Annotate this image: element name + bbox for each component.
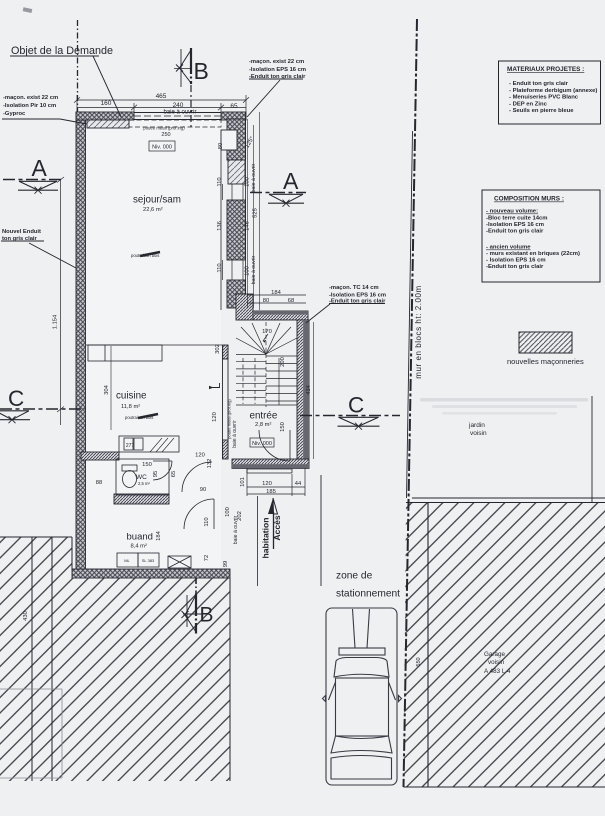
svg-text:stationnement: stationnement	[336, 589, 400, 600]
svg-text:Nouvel Enduit: Nouvel Enduit	[2, 229, 41, 235]
svg-text:2,8 m²: 2,8 m²	[255, 422, 271, 428]
svg-text:72: 72	[204, 555, 210, 561]
svg-text:Niv. 000: Niv. 000	[252, 441, 272, 447]
svg-text:ML: ML	[124, 558, 130, 563]
svg-text:C: C	[348, 393, 364, 418]
svg-text:100: 100	[225, 507, 231, 517]
svg-text:11,8 m²: 11,8 m²	[121, 404, 140, 410]
svg-text:ton gris clair: ton gris clair	[2, 236, 38, 242]
svg-text:200: 200	[280, 357, 286, 367]
svg-text:Objet de la Demande: Objet de la Demande	[11, 45, 113, 57]
svg-text:95: 95	[153, 471, 159, 477]
svg-text:550: 550	[416, 657, 422, 666]
svg-text:zone de: zone de	[336, 571, 373, 582]
svg-text:110: 110	[217, 263, 223, 272]
svg-text:88: 88	[96, 480, 102, 486]
svg-text:A 483 L 4: A 483 L 4	[484, 668, 511, 675]
svg-text:-Enduit ton gris clair: -Enduit ton gris clair	[329, 299, 386, 305]
svg-text:-maçon. exist 22 cm: -maçon. exist 22 cm	[3, 95, 58, 101]
svg-text:8,4 m²: 8,4 m²	[131, 544, 147, 550]
svg-text:2,5 m²: 2,5 m²	[138, 481, 150, 486]
svg-text:baie à ouvrir: baie à ouvrir	[251, 163, 257, 192]
svg-text:120: 120	[212, 412, 218, 422]
svg-text:80: 80	[218, 143, 224, 149]
svg-text:- DEP en Zinc: - DEP en Zinc	[509, 101, 548, 107]
svg-text:90: 90	[200, 487, 206, 493]
svg-text:185: 185	[266, 489, 276, 495]
svg-text:C: C	[8, 386, 24, 411]
svg-text:430: 430	[23, 611, 29, 621]
svg-text:B: B	[194, 58, 209, 84]
svg-text:110: 110	[204, 517, 210, 526]
svg-text:68: 68	[288, 298, 294, 304]
svg-text:baie à ouvrir: baie à ouvrir	[233, 515, 239, 544]
svg-text:-Isolation Pir 10 cm: -Isolation Pir 10 cm	[3, 103, 56, 109]
svg-text:-Isolation EPS 16 cm: -Isolation EPS 16 cm	[486, 222, 544, 228]
svg-text:SL 383: SL 383	[142, 558, 155, 563]
svg-text:- murs existant en briques (22: - murs existant en briques (22cm)	[486, 251, 580, 257]
svg-text:150: 150	[280, 422, 286, 432]
svg-text:101: 101	[240, 477, 246, 487]
svg-text:160: 160	[101, 100, 112, 107]
svg-text:A: A	[32, 155, 48, 181]
svg-text:1.154: 1.154	[53, 314, 59, 329]
svg-text:65: 65	[230, 103, 238, 110]
svg-text:184: 184	[156, 530, 162, 540]
svg-text:baie à ouvrir: baie à ouvrir	[232, 420, 238, 448]
svg-text:434: 434	[306, 384, 312, 394]
svg-text:-Enduit ton gris clair: -Enduit ton gris clair	[249, 74, 306, 80]
svg-text:jardin: jardin	[468, 422, 485, 429]
svg-text:277: 277	[126, 443, 135, 449]
svg-text:170: 170	[262, 329, 272, 335]
svg-text:baie à ouvrir: baie à ouvrir	[163, 110, 196, 116]
svg-text:132: 132	[207, 459, 213, 469]
svg-text:184: 184	[271, 290, 281, 296]
svg-text:- nouveau volume:: - nouveau volume:	[486, 209, 538, 215]
svg-text:-Enduit ton gris clair: -Enduit ton gris clair	[486, 264, 544, 270]
svg-text:mur en blocs ht: 2.00m: mur en blocs ht: 2.00m	[414, 285, 423, 378]
svg-text:465: 465	[156, 93, 167, 100]
svg-text:voisin: voisin	[470, 430, 487, 437]
svg-text:99: 99	[223, 561, 229, 567]
svg-text:-Bloc terre cuite 14cm: -Bloc terre cuite 14cm	[486, 216, 548, 222]
svg-text:120: 120	[262, 481, 272, 487]
svg-text:150: 150	[142, 462, 152, 468]
svg-text:304: 304	[104, 384, 110, 394]
svg-text:poutre métal (prof.ing): poutre métal (prof.ing)	[143, 126, 185, 131]
svg-text:buand: buand	[127, 532, 153, 543]
svg-text:120: 120	[195, 453, 205, 459]
svg-text:sejour/sam: sejour/sam	[133, 195, 181, 206]
svg-text:136: 136	[217, 221, 223, 231]
svg-text:525: 525	[253, 208, 259, 218]
svg-text:100: 100	[245, 266, 251, 276]
svg-text:poutre métal (prof.ing): poutre métal (prof.ing)	[227, 399, 232, 439]
svg-text:22,6 m²: 22,6 m²	[143, 207, 163, 213]
svg-text:cuisine: cuisine	[116, 391, 147, 402]
svg-text:baie à ouvrir: baie à ouvrir	[251, 255, 257, 284]
svg-text:- Plateforme derbigum (annexe): - Plateforme derbigum (annexe)	[509, 88, 597, 94]
svg-text:-Isolation EPS 16 cm: -Isolation EPS 16 cm	[249, 67, 306, 73]
svg-text:MATERIAUX PROJETES :: MATERIAUX PROJETES :	[507, 66, 584, 73]
svg-text:- Menuiseries PVC Blanc: - Menuiseries PVC Blanc	[509, 95, 579, 101]
svg-text:COMPOSITION MURS :: COMPOSITION MURS :	[494, 196, 564, 203]
svg-text:voisin: voisin	[488, 659, 505, 666]
svg-text:entrée: entrée	[250, 411, 278, 422]
svg-text:100: 100	[245, 177, 251, 187]
svg-text:- Isolation EPS 16 cm: - Isolation EPS 16 cm	[486, 258, 546, 264]
svg-text:-Gyproc: -Gyproc	[3, 111, 26, 117]
svg-text:habitation: habitation	[261, 517, 271, 558]
svg-text:302: 302	[215, 344, 221, 354]
svg-text:A: A	[283, 168, 299, 194]
svg-text:- Enduit ton gris clair: - Enduit ton gris clair	[509, 81, 569, 87]
svg-text:250: 250	[161, 132, 170, 138]
svg-text:-maçon. exist 22 cm: -maçon. exist 22 cm	[249, 59, 304, 65]
svg-text:nouvelles maçonneries: nouvelles maçonneries	[507, 357, 584, 366]
svg-text:65: 65	[171, 471, 177, 477]
svg-text:- ancien volume: - ancien volume	[486, 245, 531, 251]
svg-text:- Seuils en pierre bleue: - Seuils en pierre bleue	[509, 108, 574, 114]
svg-text:B: B	[200, 604, 214, 627]
svg-text:WC: WC	[136, 474, 147, 481]
svg-text:44: 44	[295, 481, 302, 487]
svg-text:-maçon. TC 14 cm: -maçon. TC 14 cm	[329, 285, 379, 291]
svg-text:146: 146	[245, 221, 251, 231]
svg-text:110: 110	[217, 177, 223, 186]
svg-text:240: 240	[173, 102, 184, 109]
svg-text:80: 80	[263, 298, 269, 304]
svg-text:Niv. 000: Niv. 000	[152, 145, 172, 151]
svg-text:Garage: Garage	[484, 651, 506, 658]
svg-text:-Enduit ton gris clair: -Enduit ton gris clair	[486, 229, 544, 235]
